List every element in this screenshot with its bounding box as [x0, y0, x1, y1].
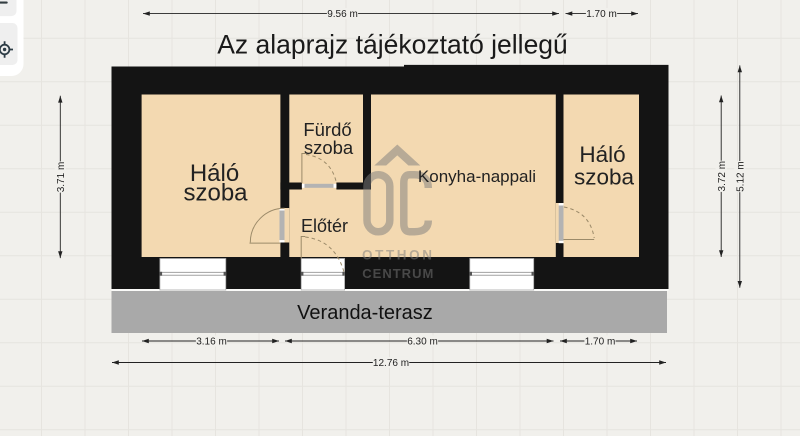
svg-text:3.16 m: 3.16 m	[196, 337, 227, 348]
svg-text:Konyha-nappali: Konyha-nappali	[418, 167, 536, 186]
svg-text:9.56 m: 9.56 m	[327, 9, 358, 20]
svg-text:12.76 m: 12.76 m	[373, 358, 409, 369]
svg-text:6.30 m: 6.30 m	[407, 337, 438, 348]
svg-text:Veranda-terasz: Veranda-terasz	[297, 302, 433, 324]
svg-text:3.72 m: 3.72 m	[717, 161, 728, 192]
svg-text:1.70 m: 1.70 m	[585, 337, 616, 348]
svg-text:szoba: szoba	[574, 165, 635, 190]
svg-text:1.70 m: 1.70 m	[586, 9, 617, 20]
svg-text:szoba: szoba	[183, 180, 248, 207]
svg-text:5.12 m: 5.12 m	[735, 161, 746, 192]
svg-text:CENTRUM: CENTRUM	[362, 266, 434, 281]
svg-text:Előtér: Előtér	[301, 216, 348, 236]
svg-text:OTTHON: OTTHON	[362, 248, 435, 263]
svg-text:Az alaprajz tájékoztató jelleg: Az alaprajz tájékoztató jellegű	[217, 30, 568, 60]
svg-text:3.71 m: 3.71 m	[56, 162, 67, 193]
svg-text:szoba: szoba	[304, 137, 354, 158]
svg-text:Háló: Háló	[579, 142, 625, 167]
